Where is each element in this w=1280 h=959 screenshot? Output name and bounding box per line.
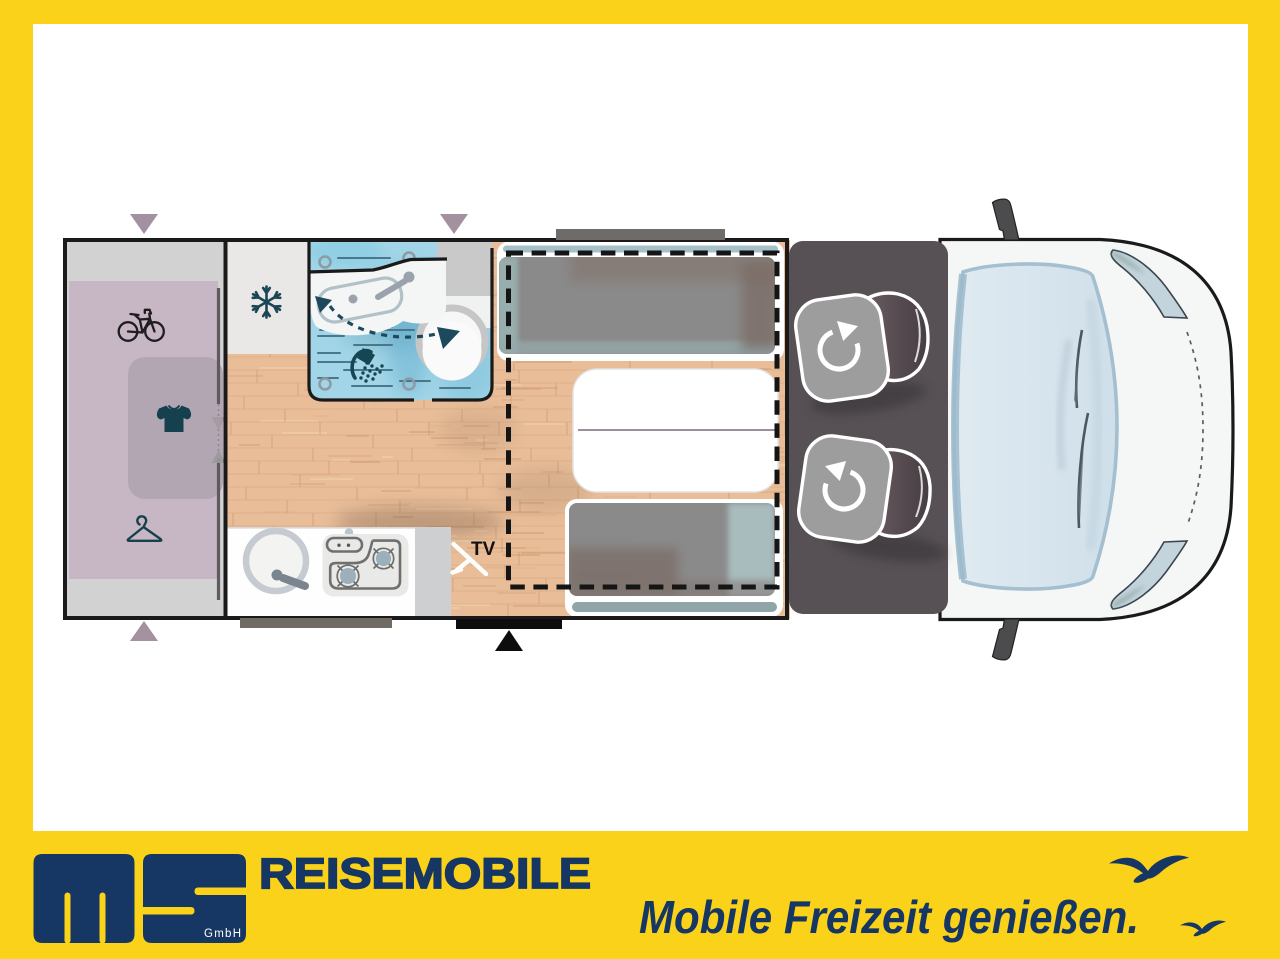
svg-text:TV: TV	[471, 539, 496, 560]
svg-text:REISEMOBILE: REISEMOBILE	[259, 851, 591, 898]
svg-text:GmbH: GmbH	[204, 928, 241, 940]
svg-text:Mobile Freizeit genießen.: Mobile Freizeit genießen.	[639, 891, 1139, 943]
